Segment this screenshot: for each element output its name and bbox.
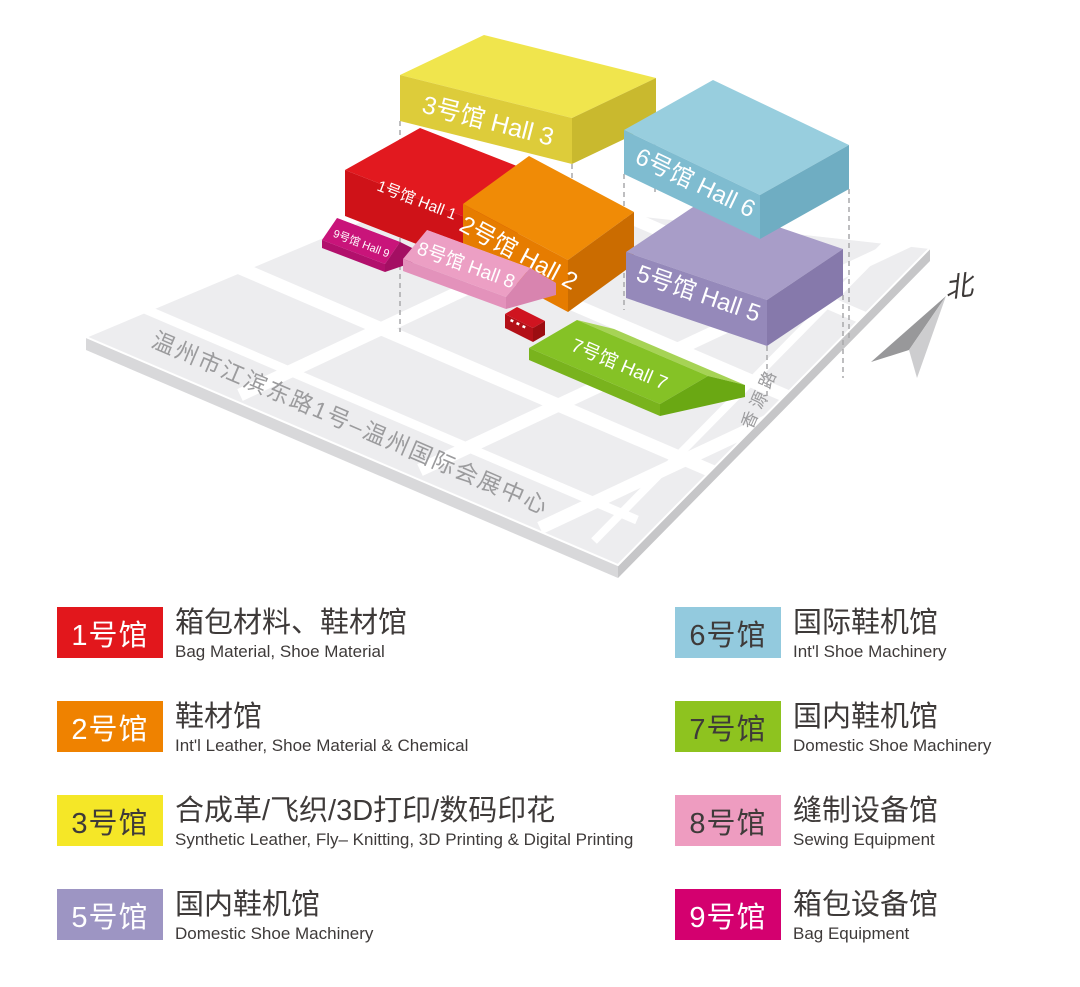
hall-2-subtitle: Int'l Leather, Shoe Material & Chemical bbox=[175, 736, 468, 756]
legend-row-hall-5: 5号馆 国内鞋机馆 Domestic Shoe Machinery bbox=[57, 889, 373, 945]
hall-5-badge: 5号馆 bbox=[57, 889, 163, 940]
hall-2-badge: 2号馆 bbox=[57, 701, 163, 752]
legend-row-hall-6: 6号馆 国际鞋机馆 Int'l Shoe Machinery bbox=[675, 607, 947, 663]
legend-row-hall-1: 1号馆 箱包材料、鞋材馆 Bag Material, Shoe Material bbox=[57, 607, 407, 663]
hall-3-title: 合成革/飞织/3D打印/数码印花 bbox=[175, 795, 633, 827]
hall-1-title: 箱包材料、鞋材馆 bbox=[175, 607, 407, 639]
legend-row-hall-8: 8号馆 缝制设备馆 Sewing Equipment bbox=[675, 795, 938, 851]
hall-5-subtitle: Domestic Shoe Machinery bbox=[175, 924, 373, 944]
hall-5-title: 国内鞋机馆 bbox=[175, 889, 373, 921]
hall-3-subtitle: Synthetic Leather, Fly– Knitting, 3D Pri… bbox=[175, 830, 633, 850]
hall-6-title: 国际鞋机馆 bbox=[793, 607, 947, 639]
hall-6-subtitle: Int'l Shoe Machinery bbox=[793, 642, 947, 662]
hall-9-title: 箱包设备馆 bbox=[793, 889, 938, 921]
hall-3-badge: 3号馆 bbox=[57, 795, 163, 846]
hall-7-subtitle: Domestic Shoe Machinery bbox=[793, 736, 991, 756]
legend-row-hall-3: 3号馆 合成革/飞织/3D打印/数码印花 Synthetic Leather, … bbox=[57, 795, 633, 851]
north-label: 北 bbox=[943, 269, 978, 304]
legend: 1号馆 箱包材料、鞋材馆 Bag Material, Shoe Material… bbox=[0, 585, 1080, 987]
hall-8-subtitle: Sewing Equipment bbox=[793, 830, 938, 850]
hall-8-badge: 8号馆 bbox=[675, 795, 781, 846]
hall-9-badge: 9号馆 bbox=[675, 889, 781, 940]
hall-6-badge: 6号馆 bbox=[675, 607, 781, 658]
hall-6-block: 6号馆 Hall 6 bbox=[624, 80, 849, 239]
venue-map-page: 温州市江滨东路1号–温州国际会展中心 香源路 1号馆 Hall 1 bbox=[0, 0, 1080, 987]
hall-8-title: 缝制设备馆 bbox=[793, 795, 938, 827]
site-map-svg: 温州市江滨东路1号–温州国际会展中心 香源路 1号馆 Hall 1 bbox=[0, 0, 1080, 585]
site-map: 温州市江滨东路1号–温州国际会展中心 香源路 1号馆 Hall 1 bbox=[0, 0, 1080, 585]
hall-7-title: 国内鞋机馆 bbox=[793, 701, 991, 733]
legend-row-hall-2: 2号馆 鞋材馆 Int'l Leather, Shoe Material & C… bbox=[57, 701, 468, 757]
hall-9-subtitle: Bag Equipment bbox=[793, 924, 938, 944]
hall-1-badge: 1号馆 bbox=[57, 607, 163, 658]
hall-2-title: 鞋材馆 bbox=[175, 701, 468, 733]
legend-row-hall-9: 9号馆 箱包设备馆 Bag Equipment bbox=[675, 889, 938, 945]
legend-row-hall-7: 7号馆 国内鞋机馆 Domestic Shoe Machinery bbox=[675, 701, 991, 757]
hall-7-badge: 7号馆 bbox=[675, 701, 781, 752]
hall-1-subtitle: Bag Material, Shoe Material bbox=[175, 642, 407, 662]
